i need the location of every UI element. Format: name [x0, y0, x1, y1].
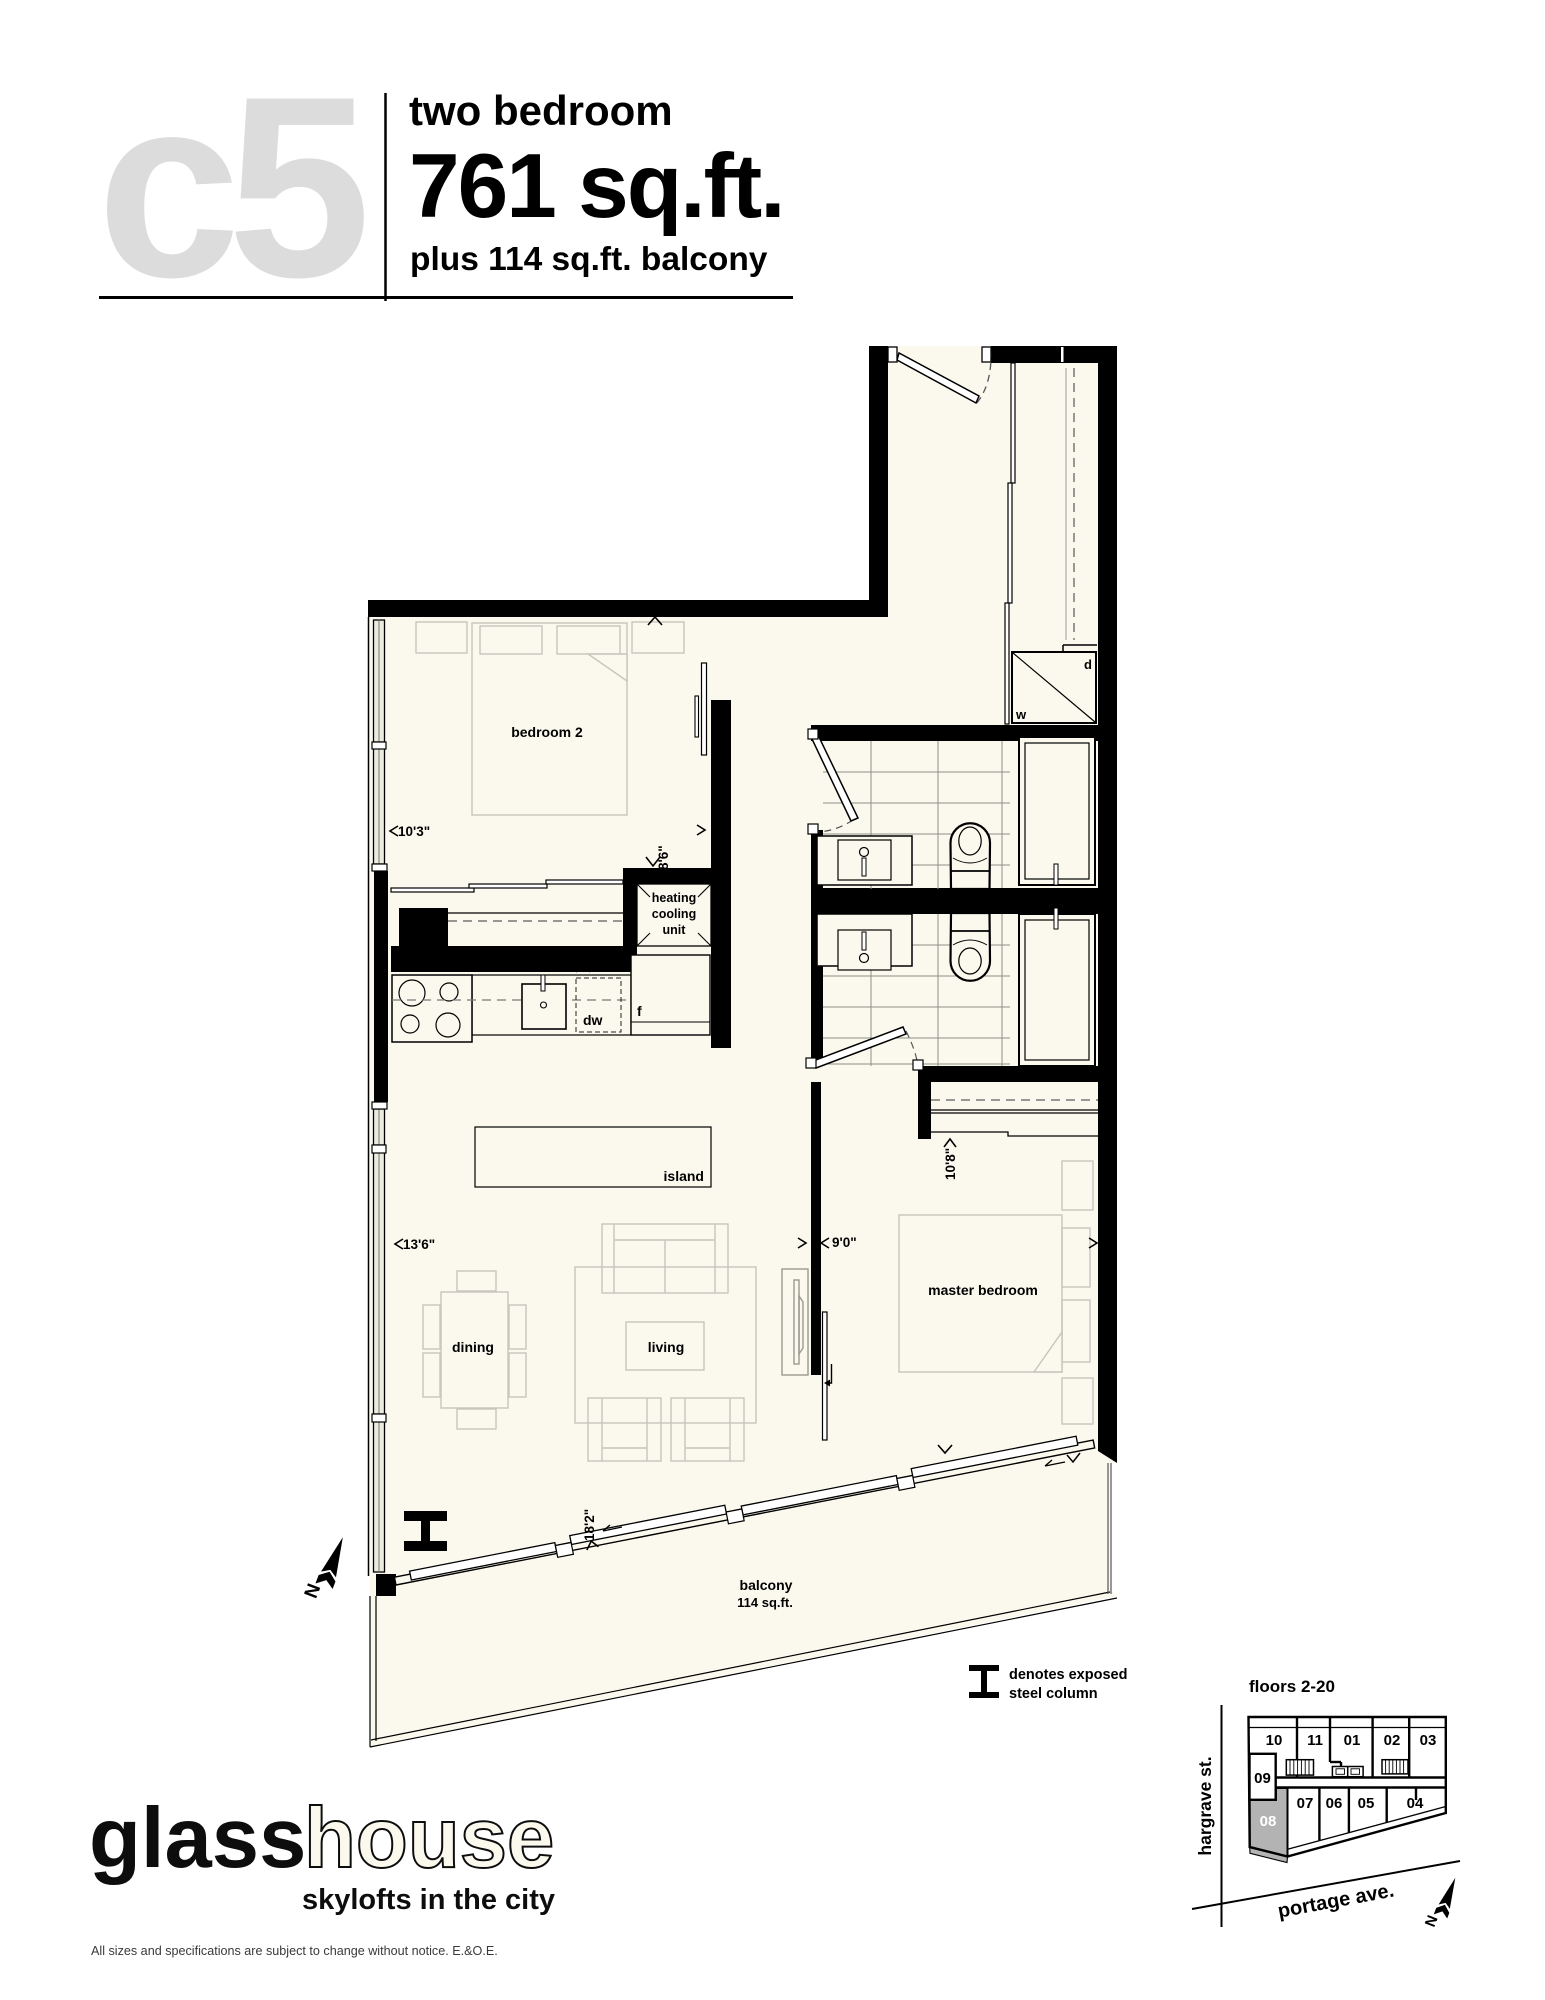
svg-text:dining: dining [452, 1339, 494, 1355]
svg-text:skylofts in the city: skylofts in the city [302, 1884, 555, 1916]
svg-text:10: 10 [1266, 1732, 1283, 1749]
svg-text:03: 03 [1420, 1732, 1437, 1749]
svg-text:bedroom 2: bedroom 2 [511, 724, 583, 740]
svg-text:13'6": 13'6" [403, 1237, 435, 1252]
svg-text:two bedroom: two bedroom [409, 87, 673, 134]
svg-text:living: living [648, 1339, 685, 1355]
svg-text:11: 11 [1307, 1732, 1323, 1749]
svg-text:N: N [1422, 1913, 1442, 1929]
svg-text:01: 01 [1344, 1732, 1361, 1749]
svg-text:N: N [301, 1581, 326, 1601]
svg-text:heating: heating [652, 891, 696, 905]
svg-text:18'2": 18'2" [582, 1509, 597, 1541]
svg-text:06: 06 [1326, 1795, 1343, 1812]
svg-text:balcony: balcony [740, 1577, 793, 1593]
svg-text:d: d [1084, 657, 1092, 672]
svg-text:09: 09 [1254, 1770, 1271, 1787]
svg-text:glass: glass [89, 1791, 306, 1886]
svg-text:05: 05 [1358, 1795, 1375, 1812]
svg-text:07: 07 [1297, 1795, 1314, 1812]
svg-text:c5: c5 [97, 42, 365, 331]
svg-text:cooling: cooling [652, 907, 696, 921]
svg-text:9'0": 9'0" [832, 1235, 857, 1250]
svg-text:04: 04 [1407, 1795, 1424, 1812]
svg-text:761 sq.ft.: 761 sq.ft. [409, 136, 783, 237]
svg-text:10'3": 10'3" [398, 824, 430, 839]
svg-text:10'8": 10'8" [943, 1148, 958, 1180]
svg-text:114 sq.ft.: 114 sq.ft. [737, 1595, 793, 1610]
svg-text:floors 2-20: floors 2-20 [1249, 1677, 1335, 1696]
svg-text:unit: unit [663, 923, 687, 937]
svg-text:steel column: steel column [1009, 1686, 1098, 1702]
svg-text:f: f [637, 1003, 642, 1019]
svg-text:plus 114 sq.ft. balcony: plus 114 sq.ft. balcony [410, 241, 768, 278]
svg-text:hargrave st.: hargrave st. [1195, 1756, 1215, 1855]
svg-text:house: house [304, 1791, 554, 1886]
svg-text:All sizes and specifications a: All sizes and specifications are subject… [91, 1944, 498, 1958]
svg-text:w: w [1015, 707, 1027, 722]
svg-text:8'6": 8'6" [656, 845, 671, 870]
svg-text:08: 08 [1260, 1813, 1277, 1830]
svg-text:dw: dw [583, 1012, 603, 1028]
svg-text:02: 02 [1384, 1732, 1401, 1749]
svg-text:denotes exposed: denotes exposed [1009, 1667, 1127, 1683]
svg-text:island: island [664, 1168, 704, 1184]
svg-text:portage ave.: portage ave. [1276, 1880, 1396, 1923]
svg-text:master bedroom: master bedroom [928, 1282, 1038, 1298]
